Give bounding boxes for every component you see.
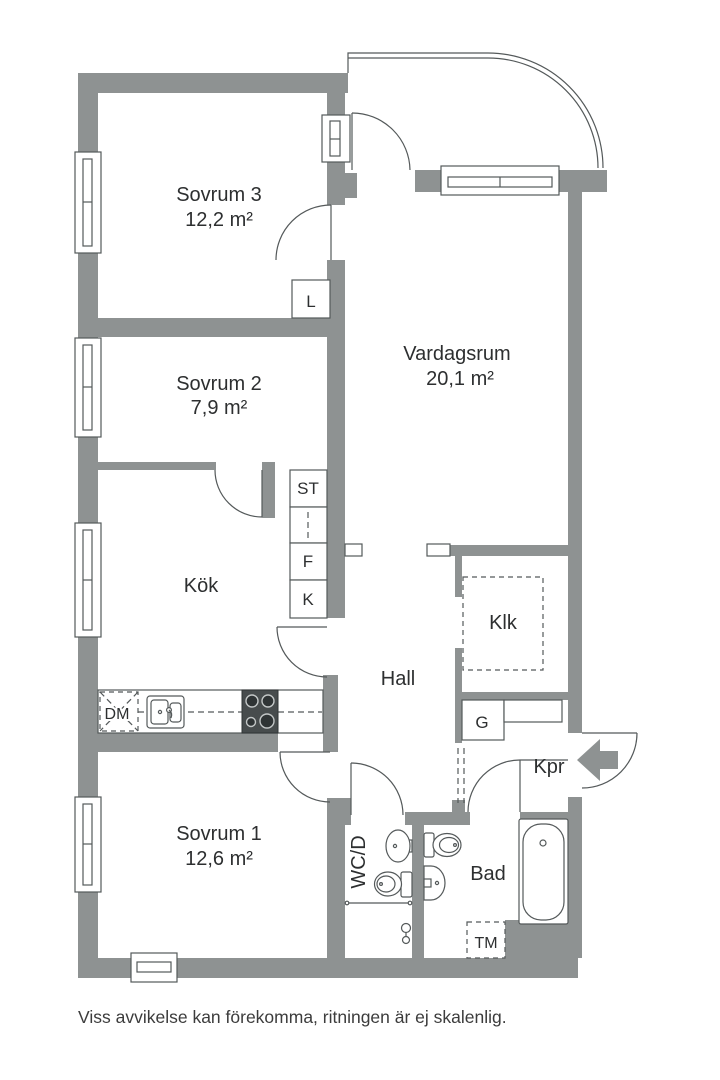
label-vardagsrum-name: Vardagsrum [403,343,510,365]
wall-segment-klk-stub-upper [455,556,462,597]
shower-mixer [402,924,411,944]
wall-segment-mid-a [327,93,345,117]
label-washing-machine: TM [474,935,497,952]
door-sovrum3 [276,205,331,260]
label-sovrum3-area: 12,2 m² [185,209,253,231]
door-balcony [352,113,410,170]
kitchen-sink [147,696,184,728]
window-sovrum2 [75,338,101,437]
wall-segment-mid-b [327,160,345,205]
label-bad: Bad [470,863,506,885]
floorplan-page: Sovrum 3 12,2 m² Sovrum 2 7,9 m² Vardags… [0,0,720,1080]
bathtub [519,819,568,924]
kitchen-counter [98,690,323,733]
label-sovrum2-name: Sovrum 2 [176,373,262,395]
room-labels: Sovrum 3 12,2 m² Sovrum 2 7,9 m² Vardags… [176,184,565,889]
door-sovrum2-kok [215,470,262,517]
wall-segment-kok-sovrum1 [98,733,278,752]
label-wcd: WC/D [348,835,370,888]
label-fridge: F [303,552,313,571]
hall-kpr-dashed-opening [458,748,464,803]
wcd-sink [386,830,412,862]
window-balcony-side [322,115,350,162]
door-kok-hall [277,627,327,677]
wall-segment-door-post [452,800,465,825]
balcony-rail-outer [348,53,603,168]
label-hall: Hall [381,668,415,690]
door-wcd [351,763,403,815]
window-kok [75,523,101,637]
door-bad [468,760,520,812]
label-sovrum1-name: Sovrum 1 [176,823,262,845]
label-dishwasher: DM [105,706,130,723]
label-vardagsrum-area: 20,1 m² [426,368,494,390]
wcd-toilet [375,872,413,897]
wall-segment-mid-ext [345,173,357,198]
stove [242,690,278,733]
balcony-outline [348,53,603,168]
wall-segment-top [78,73,348,93]
opening-jamb-right [427,544,450,556]
wall-segment-klk-top [450,545,568,556]
wall-segment-sovrum2-kok [98,462,216,470]
opening-jamb-left [345,544,362,556]
label-sovrum3-name: Sovrum 3 [176,184,262,206]
bad-toilet [424,833,461,857]
label-kpr: Kpr [533,756,564,778]
shower-line [345,901,412,905]
floorplan-drawing: Sovrum 3 12,2 m² Sovrum 2 7,9 m² Vardags… [0,0,720,1080]
wall-segment-bottomright-block [505,920,578,968]
wall-segment-wcd-bad-divider [412,812,424,962]
wall-segment-wcd-left [327,798,345,962]
window-sovrum1-bottom [131,953,177,982]
hat-shelf-box [504,700,562,722]
bad-sink [424,866,445,900]
wall-segment-topband-right [557,170,607,192]
wall-segment-g-closet [455,692,568,700]
label-sovrum1-area: 12,6 m² [185,848,253,870]
label-kok: Kök [184,575,219,597]
window-sovrum1 [75,797,101,892]
label-klk: Klk [489,612,518,634]
disclaimer-text: Viss avvikelse kan förekomma, ritningen … [78,1007,507,1027]
label-linen-closet: L [306,292,315,311]
balcony-rail-inner [348,58,598,168]
window-sovrum3 [75,152,101,253]
wall-segment-sovrum3-sovrum2 [98,318,345,337]
label-freezer: K [302,590,314,609]
wall-segment-right-upper [568,170,582,733]
door-sovrum1 [280,752,330,802]
wall-segment-counter-end [323,675,338,752]
window-vardagsrum [441,166,559,195]
entrance-arrow-icon [577,739,618,781]
label-cleaning-cabinet: ST [297,479,319,498]
wall-segment-kok-door-stub [262,462,275,518]
label-g-wardrobe: G [475,713,488,732]
label-sovrum2-area: 7,9 m² [191,397,248,419]
wall-segment-vardagsrum-top [415,170,443,192]
